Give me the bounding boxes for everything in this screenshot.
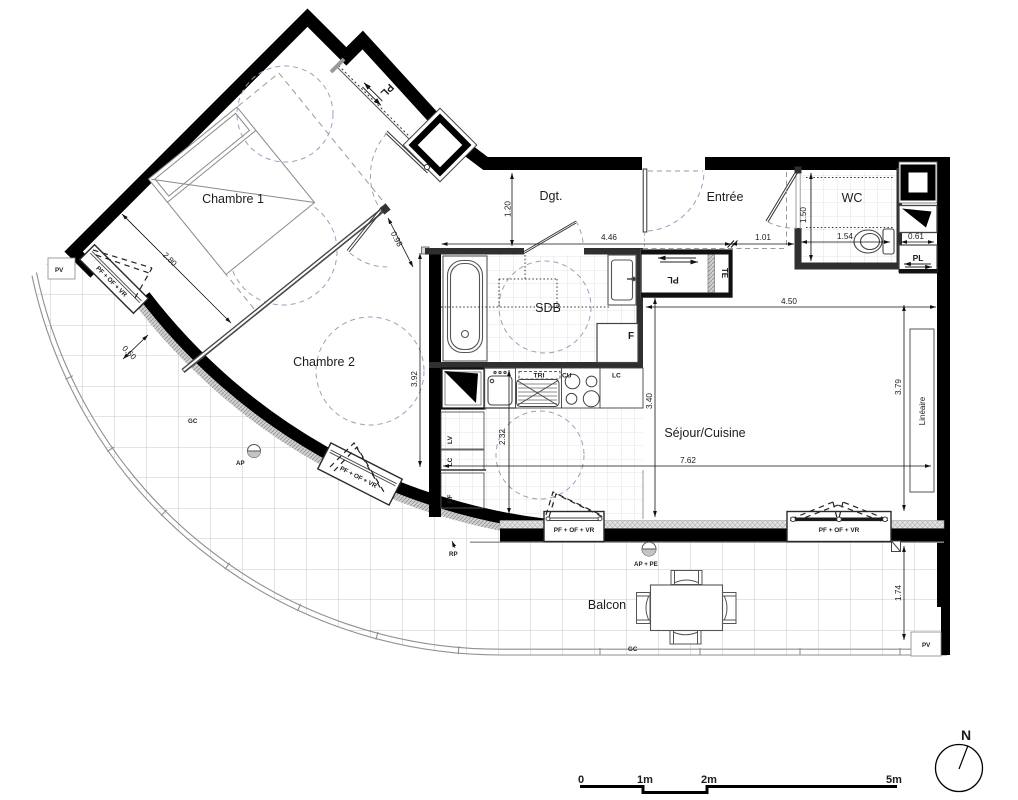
svg-text:RF: RF (447, 495, 454, 504)
svg-text:RP: RP (449, 551, 458, 558)
svg-text:7.62: 7.62 (680, 456, 696, 465)
svg-text:0.61: 0.61 (908, 232, 924, 241)
svg-text:PL: PL (913, 253, 924, 263)
svg-text:LC: LC (447, 457, 454, 466)
svg-text:Dgt.: Dgt. (540, 189, 563, 203)
svg-text:LV: LV (447, 435, 454, 444)
svg-text:PV: PV (922, 642, 931, 649)
svg-text:PF + OF + VR: PF + OF + VR (554, 527, 595, 534)
svg-text:CU: CU (562, 373, 572, 380)
svg-text:SDB: SDB (535, 301, 561, 315)
svg-text:Séjour/Cuisine: Séjour/Cuisine (664, 426, 745, 440)
svg-text:PL: PL (667, 275, 679, 285)
svg-text:F: F (628, 331, 634, 342)
svg-text:PV: PV (55, 267, 64, 274)
svg-text:3.40: 3.40 (645, 393, 654, 409)
svg-text:Chambre 1: Chambre 1 (202, 192, 264, 206)
svg-text:1.50: 1.50 (799, 207, 808, 223)
svg-text:AP: AP (236, 460, 245, 467)
svg-text:GC: GC (628, 646, 638, 653)
svg-text:1.74: 1.74 (894, 585, 903, 601)
svg-text:LC: LC (612, 373, 621, 380)
svg-text:Linéaire: Linéaire (918, 396, 927, 425)
svg-text:1.54: 1.54 (837, 232, 853, 241)
svg-text:4.46: 4.46 (601, 233, 617, 242)
svg-text:PF + OF + VR: PF + OF + VR (819, 527, 860, 534)
svg-text:AP + PE: AP + PE (634, 561, 658, 568)
svg-text:TRI: TRI (534, 373, 545, 380)
svg-text:5m: 5m (886, 774, 902, 786)
svg-text:0: 0 (578, 774, 584, 786)
svg-text:1.20: 1.20 (504, 201, 513, 217)
svg-text:3.92: 3.92 (410, 371, 419, 387)
svg-text:TE: TE (720, 268, 729, 279)
svg-text:Chambre 2: Chambre 2 (293, 355, 355, 369)
svg-text:3.79: 3.79 (894, 379, 903, 395)
svg-text:GC: GC (188, 418, 198, 425)
svg-text:WC: WC (842, 191, 863, 205)
svg-text:4.50: 4.50 (781, 297, 797, 306)
svg-text:1.01: 1.01 (755, 233, 771, 242)
svg-text:1m: 1m (637, 774, 653, 786)
svg-text:Entrée: Entrée (707, 190, 744, 204)
svg-text:2.32: 2.32 (498, 429, 507, 445)
svg-text:Balcon: Balcon (588, 598, 626, 612)
svg-text:2m: 2m (701, 774, 717, 786)
svg-text:N: N (961, 727, 971, 743)
